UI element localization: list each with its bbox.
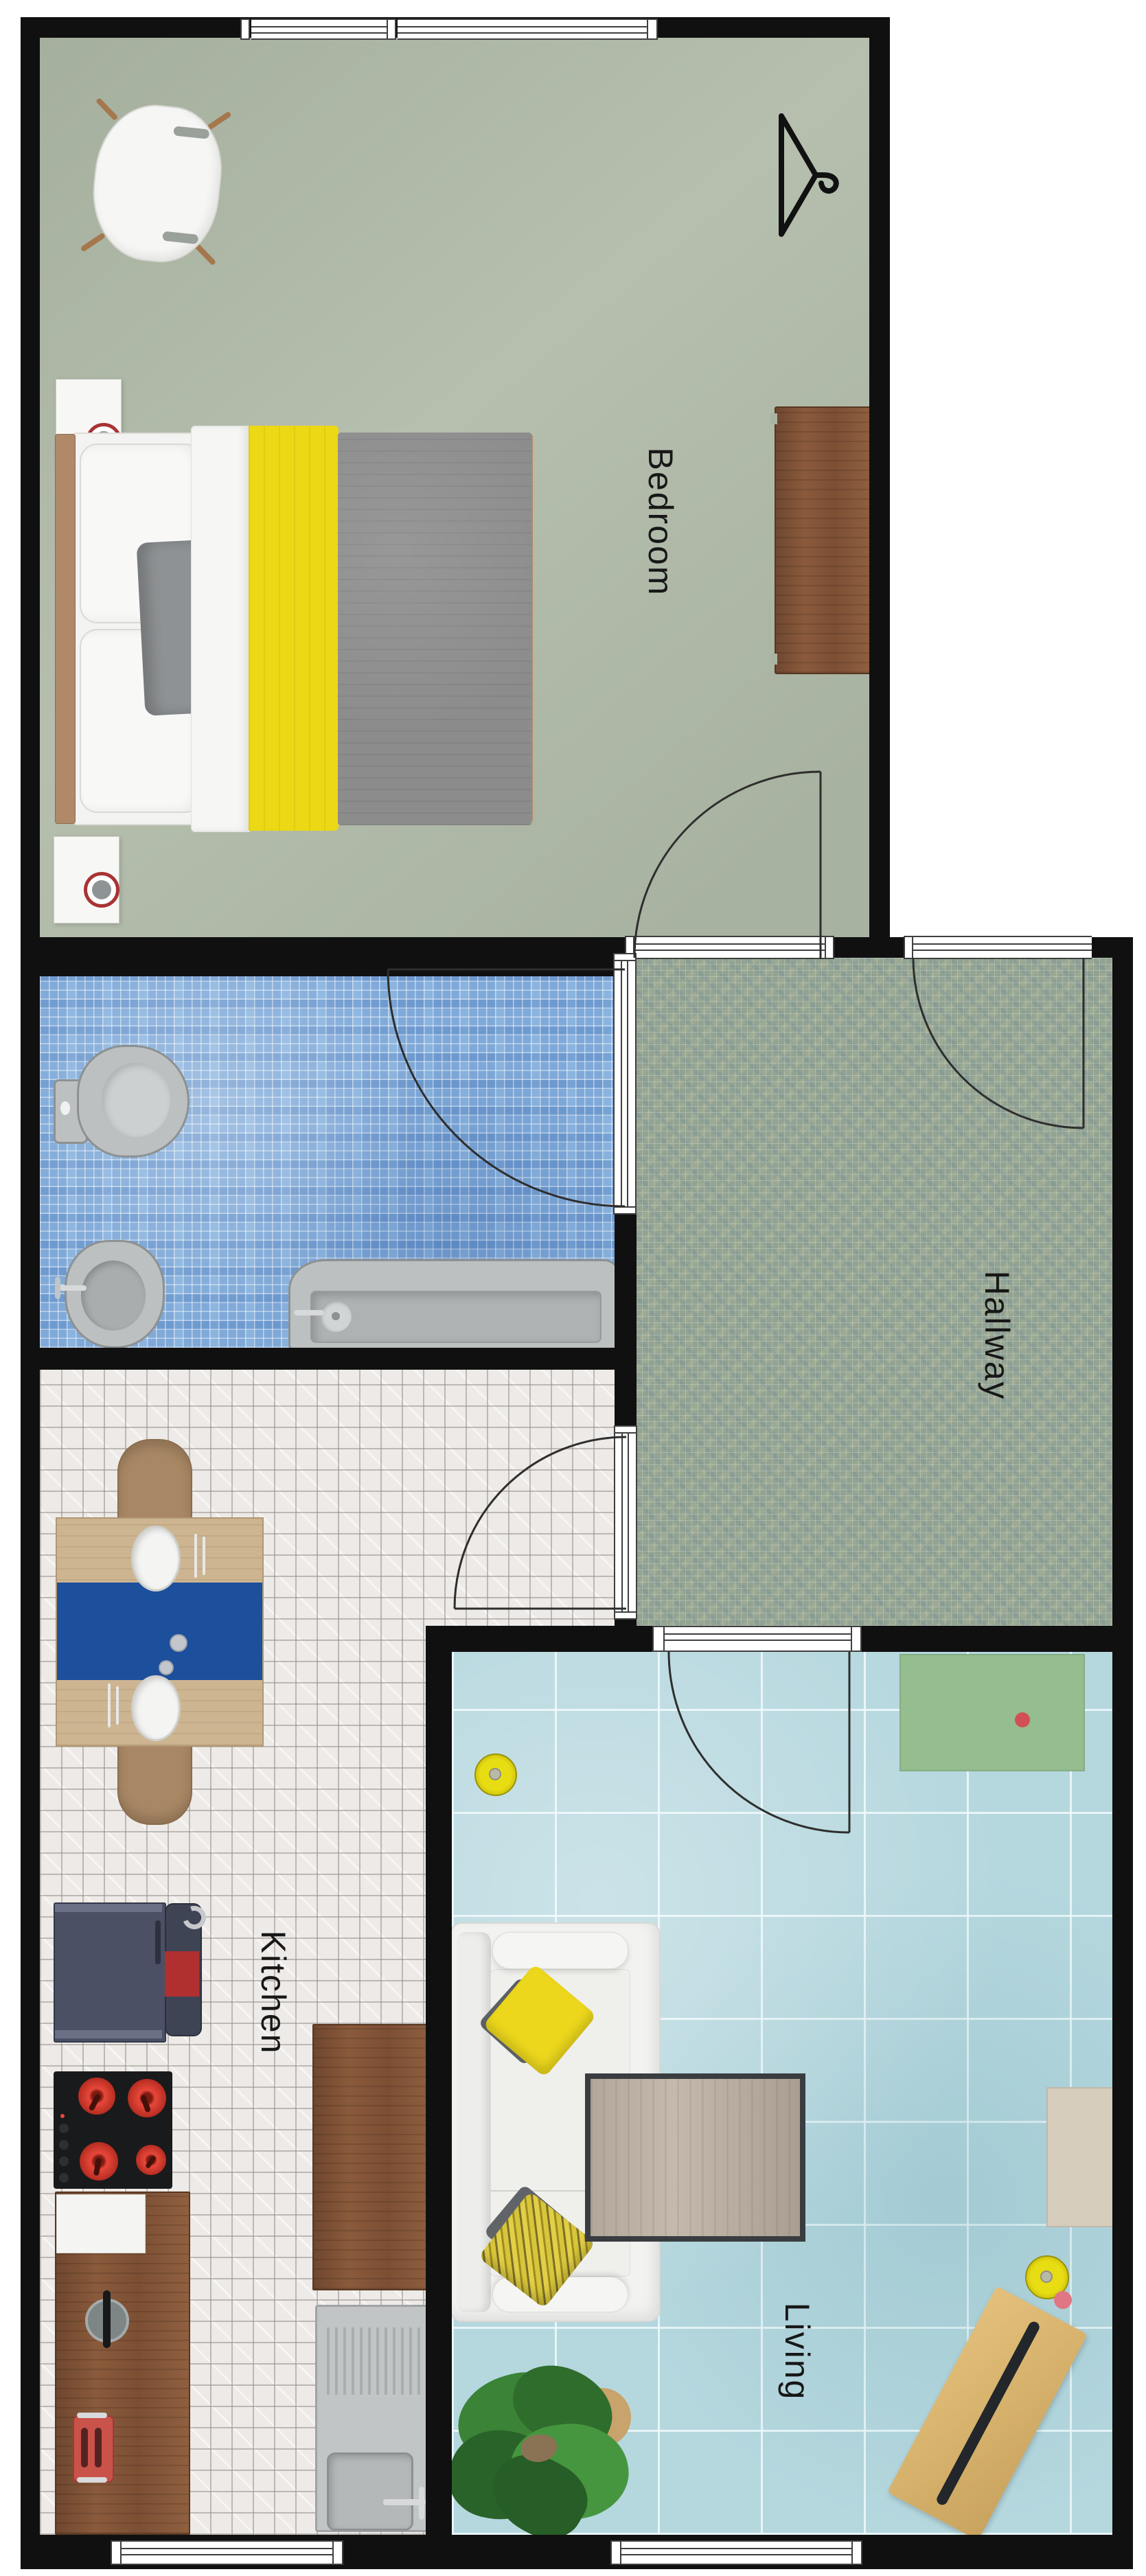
- hanger-icon: [781, 116, 836, 234]
- door-swing-arc-kitchen: [455, 1437, 626, 1609]
- floorplan-page: Bedroom Hallway Kitchen Living: [0, 0, 1146, 2576]
- door-swing-arc-bedroom: [634, 772, 821, 958]
- room-label-bedroom: Bedroom: [641, 448, 680, 597]
- room-label-living: Living: [777, 2303, 817, 2401]
- door-swing-arc-entry: [913, 958, 1084, 1128]
- room-label-hallway: Hallway: [977, 1270, 1017, 1400]
- door-swing-arc-bathroom: [388, 969, 625, 1206]
- room-label-kitchen: Kitchen: [253, 1931, 293, 2055]
- door-swing-arc-living: [669, 1652, 849, 1832]
- plan-overlay: [0, 0, 1146, 2576]
